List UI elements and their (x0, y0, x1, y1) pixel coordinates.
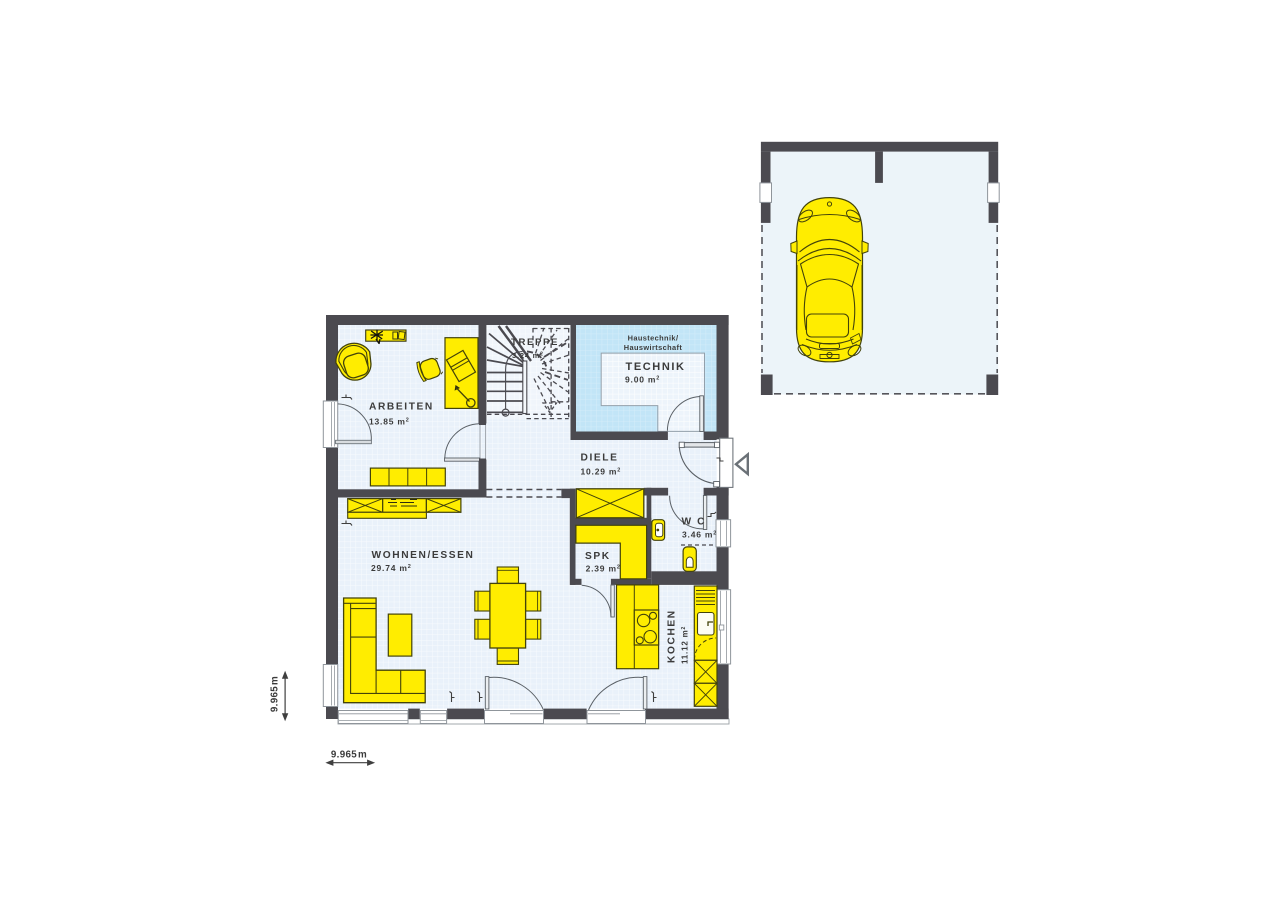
svg-text:2.39 m2: 2.39 m2 (586, 564, 621, 574)
svg-text:9.00 m2: 9.00 m2 (625, 375, 660, 385)
svg-text:9.965 m: 9.965 m (270, 676, 281, 712)
svg-text:Haustechnik/: Haustechnik/ (628, 334, 679, 343)
svg-text:3.24 m2: 3.24 m2 (512, 351, 544, 360)
svg-text:DIELE: DIELE (581, 453, 619, 464)
svg-text:SPK: SPK (585, 551, 611, 562)
svg-text:KOCHEN: KOCHEN (667, 609, 678, 663)
svg-text:3.46 m2: 3.46 m2 (682, 530, 717, 540)
svg-text:W C: W C (682, 517, 707, 528)
svg-text:Hauswirtschaft: Hauswirtschaft (624, 343, 683, 352)
svg-text:TECHNIK: TECHNIK (626, 361, 686, 373)
svg-text:11.12 m2: 11.12 m2 (681, 626, 690, 664)
svg-text:9.965 m: 9.965 m (331, 750, 367, 761)
svg-text:TREPPE: TREPPE (511, 337, 559, 348)
svg-text:WOHNEN/ESSEN: WOHNEN/ESSEN (372, 550, 475, 561)
svg-text:13.85 m2: 13.85 m2 (369, 417, 410, 427)
svg-text:29.74 m2: 29.74 m2 (371, 563, 412, 573)
svg-text:10.29 m2: 10.29 m2 (581, 467, 622, 477)
svg-text:ARBEITEN: ARBEITEN (369, 402, 434, 413)
